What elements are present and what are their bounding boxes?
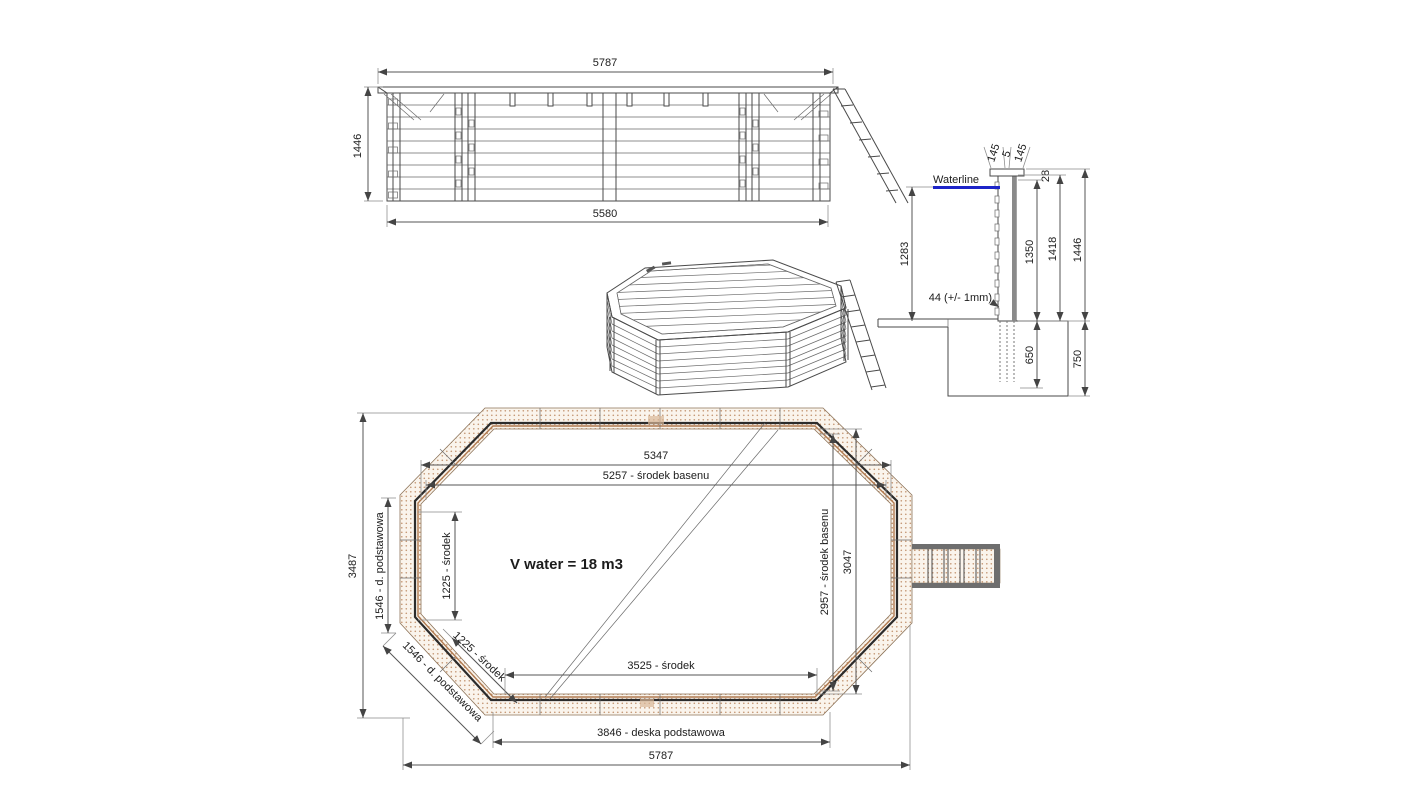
dim-label-5257: 5257 - środek basenu — [603, 470, 709, 482]
dim-label-1418: 1418 — [1047, 237, 1059, 261]
waterline-marker — [933, 186, 1000, 189]
dim-label-3047: 3047 — [842, 550, 854, 574]
log-end-right — [813, 93, 828, 201]
dim-label-5787-top: 5787 — [593, 57, 617, 69]
pool-side-elevation — [378, 87, 908, 203]
dim-label-650: 650 — [1024, 346, 1036, 364]
plan-view: V water = 18 m3 5347 5257 - środek basen… — [320, 395, 1020, 785]
vertical-posts — [455, 93, 759, 201]
waterline-label: Waterline — [933, 174, 979, 186]
wall-section: Waterline — [878, 169, 1068, 396]
pool-3d-drawing — [605, 260, 886, 395]
dim-label-1446-section: 1446 — [1072, 238, 1084, 262]
foundation — [948, 321, 1068, 396]
dim-label-3487: 3487 — [347, 554, 359, 578]
elevation-view: 5787 5580 1446 — [330, 30, 940, 245]
dim-label-3846: 3846 - deska podstawowa — [597, 727, 726, 739]
rim-brackets — [510, 93, 708, 106]
section-view: Waterline 145 5 145 28 1283 44 (+/- 1mm)… — [860, 115, 1125, 410]
water-volume-label: V water = 18 m3 — [510, 556, 623, 573]
dim-label-750: 750 — [1072, 350, 1084, 368]
dim-label-5580: 5580 — [593, 208, 617, 220]
corner-braces — [384, 94, 831, 120]
perspective-view — [585, 245, 890, 410]
dim-label-5787-plan: 5787 — [649, 750, 673, 762]
dim-label-145-left: 145 — [985, 142, 1002, 163]
dim-label-145-right: 145 — [1012, 142, 1029, 163]
section-dimensions: 145 5 145 28 1283 44 (+/- 1mm) 1350 1418… — [899, 142, 1090, 396]
dim-label-2957: 2957 - środek basenu — [819, 509, 831, 615]
dim-label-1446-elev: 1446 — [352, 134, 364, 158]
pool-technical-drawing: 5787 5580 1446 — [0, 0, 1422, 800]
dim-label-1283: 1283 — [899, 242, 911, 266]
dim-label-3525: 3525 - środek — [627, 660, 695, 672]
dim-label-5347: 5347 — [644, 450, 668, 462]
log-end-left — [389, 93, 401, 201]
dim-label-1350: 1350 — [1024, 240, 1036, 264]
dim-label-1225-left: 1225 - środek — [441, 532, 453, 600]
top-rim — [378, 87, 838, 93]
dim-label-1546-left: 1546 - d. podstawowa — [374, 511, 386, 620]
buried-post — [1000, 321, 1014, 382]
dim-label-5: 5 — [1000, 149, 1013, 159]
plan-ladder — [912, 544, 1000, 588]
wall-thickness-label: 44 (+/- 1mm) — [929, 292, 992, 304]
